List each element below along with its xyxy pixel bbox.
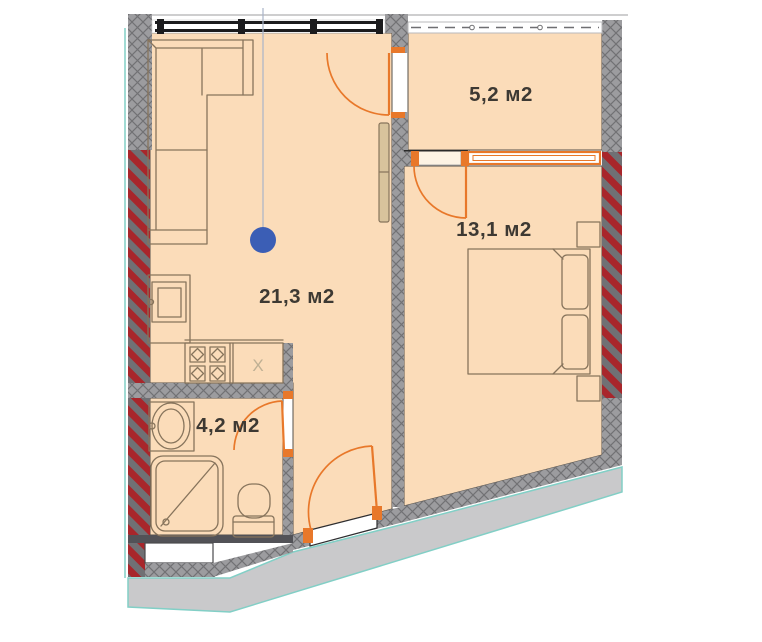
door-hinge-marker	[391, 47, 405, 53]
wardrobe-icon	[379, 123, 389, 222]
wall-left-loadbearing	[128, 150, 150, 543]
wall-right-balcony	[602, 20, 622, 152]
floor-plan-canvas: X	[0, 0, 762, 642]
counter-x-mark: X	[252, 356, 263, 375]
bedroom-area-label: 13,1 м2	[456, 218, 532, 241]
balcony-area-label: 5,2 м2	[469, 83, 533, 106]
floors	[150, 33, 602, 535]
niche	[145, 543, 213, 563]
wall-kitchen-bathroom	[128, 383, 293, 398]
wall-top-pier	[385, 14, 408, 33]
door-hinge-marker	[391, 112, 405, 118]
window-mullion	[376, 19, 383, 34]
wall-right-loadbearing	[602, 152, 622, 398]
wall-left-bottom	[128, 543, 145, 577]
door-hinge-marker	[461, 151, 469, 166]
wall-bathroom-right	[283, 450, 293, 535]
floor-plan-svg: X	[0, 0, 762, 642]
living-window	[152, 19, 385, 34]
window-mullion	[157, 19, 164, 34]
window-mullion	[310, 19, 317, 34]
bathroom-area-label: 4,2 м2	[196, 414, 260, 437]
window-frame-inner	[155, 29, 383, 32]
bedroom-floor	[404, 166, 602, 506]
balcony-glazing	[408, 22, 602, 33]
glazing-mark	[470, 25, 475, 30]
window-orange-frame	[468, 152, 600, 164]
glazing-mark	[538, 25, 543, 30]
window-frame-outer	[155, 21, 383, 24]
wall-partition-bedroom	[392, 166, 404, 507]
wall-niche-band	[145, 563, 215, 577]
door-hinge-marker	[411, 151, 419, 166]
door-hinge-marker	[303, 528, 313, 543]
bedroom-door-gap	[417, 151, 461, 165]
pendant-dot	[250, 227, 276, 253]
wall-bathroom-stub	[283, 343, 293, 398]
window-mullion	[238, 19, 245, 34]
door-hinge-marker	[283, 391, 293, 399]
living-area-label: 21,3 м2	[259, 285, 335, 308]
